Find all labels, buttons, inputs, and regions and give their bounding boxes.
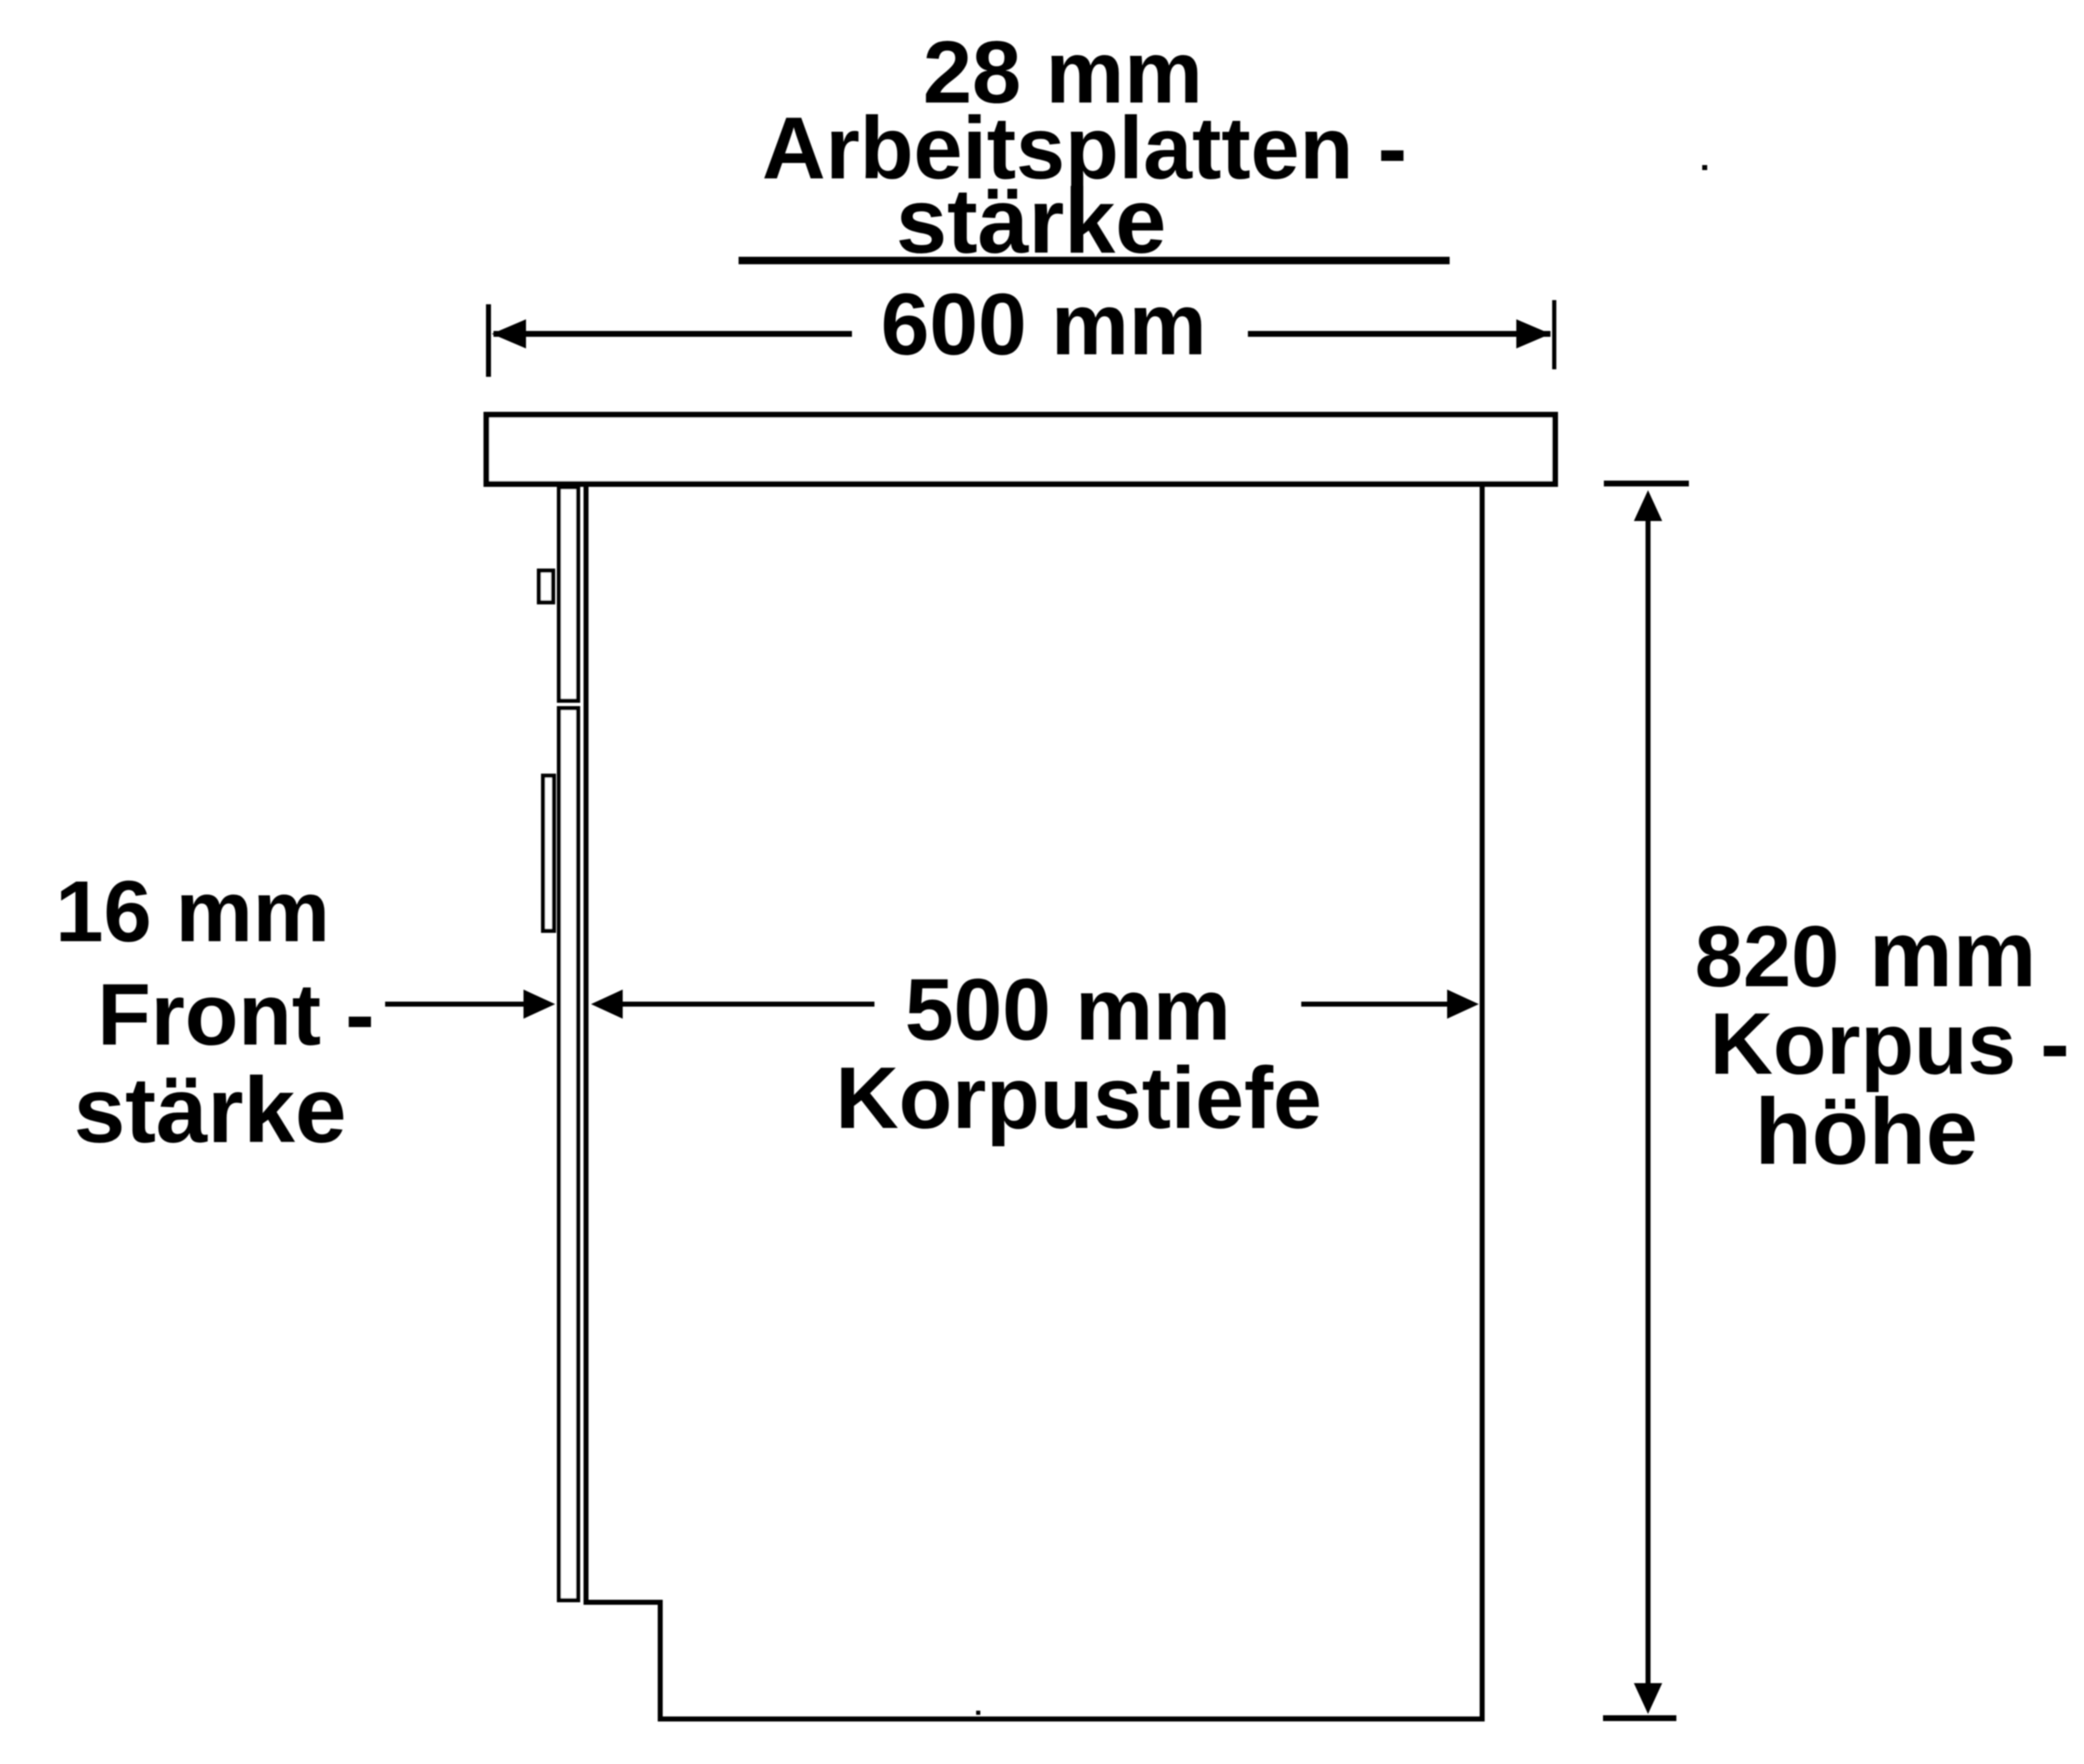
svg-text:höhe: höhe	[1755, 1080, 1978, 1184]
svg-text:500 mm: 500 mm	[904, 961, 1230, 1059]
svg-text:Korpustiefe: Korpustiefe	[835, 1050, 1321, 1147]
svg-text:600 mm: 600 mm	[880, 276, 1206, 373]
svg-text:820: 820	[1695, 909, 1840, 1005]
svg-text:Korpus -: Korpus -	[1710, 995, 2070, 1093]
svg-text:Front -: Front -	[98, 966, 374, 1064]
svg-text:mm: mm	[1869, 901, 2036, 1006]
svg-text:16 mm: 16 mm	[55, 864, 330, 960]
svg-text:stärke: stärke	[73, 1059, 346, 1162]
